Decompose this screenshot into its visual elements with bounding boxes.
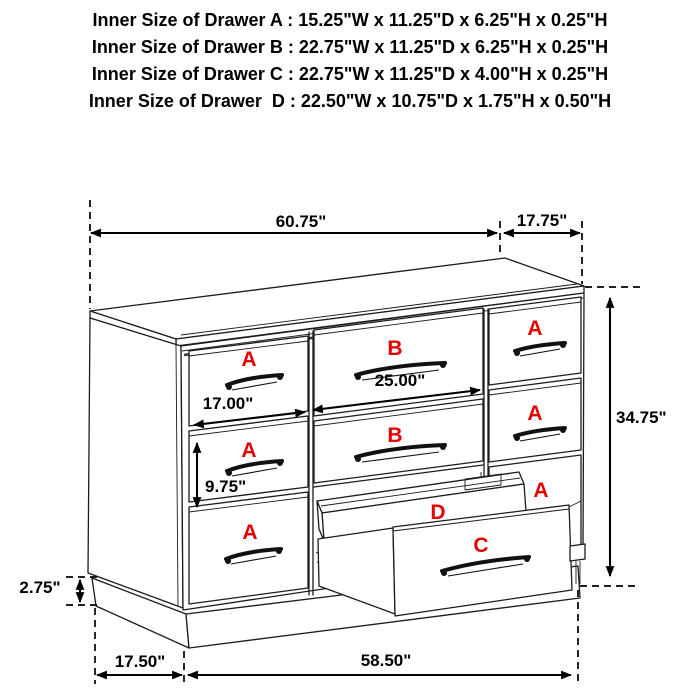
drawer-label-d: D: [430, 501, 445, 524]
drawer-label-a-left-1: A: [241, 348, 256, 371]
dim-overall-height: 34.75": [580, 287, 667, 586]
top-depth-label: 17.75": [517, 211, 568, 230]
drawer-label-b-1: B: [387, 337, 402, 360]
top-width-label: 60.75": [276, 212, 327, 231]
base-front-width-label: 58.50": [361, 651, 412, 670]
overall-height-label: 34.75": [616, 408, 667, 427]
drawer-a-height-label: 9.75": [205, 477, 246, 496]
base-height-label: 2.75": [19, 578, 60, 597]
drawer-label-a-right-2: A: [527, 402, 542, 425]
drawer-label-a-left-3: A: [242, 521, 257, 544]
drawer-label-a-right-1: A: [527, 317, 542, 340]
drawer-b-width-label: 25.00": [375, 371, 426, 390]
left-side-panel: [88, 318, 183, 608]
drawer-label-a-right-3: A: [533, 479, 548, 502]
drawer-label-b-2: B: [387, 424, 402, 447]
dresser-dimension-diagram: Inner Size of Drawer A : 15.25"W x 11.25…: [0, 0, 700, 700]
dim-base-height: 2.75": [19, 577, 100, 605]
dresser-line-drawing: 60.75" 17.75": [0, 0, 700, 700]
drawer-label-c: C: [473, 534, 488, 557]
drawer-label-a-left-2: A: [241, 439, 256, 462]
drawer-a-right-1: [489, 297, 581, 385]
drawer-a-left-3: [189, 492, 308, 604]
base-side-depth-label: 17.50": [115, 652, 166, 671]
drawer-a-width-label: 17.00": [203, 394, 254, 413]
